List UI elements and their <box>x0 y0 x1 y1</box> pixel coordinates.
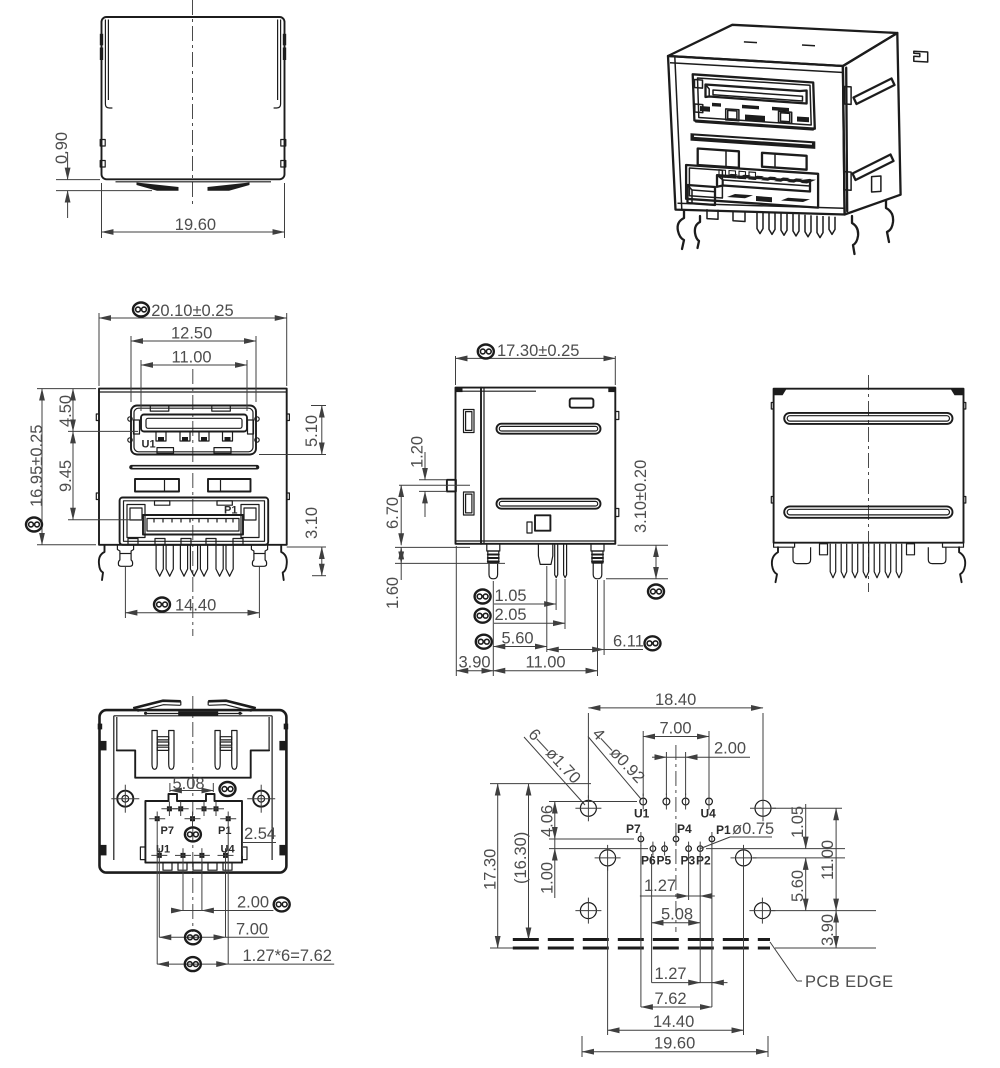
svg-text:0.90: 0.90 <box>53 132 71 164</box>
svg-text:5.60: 5.60 <box>789 870 807 902</box>
svg-text:12.50: 12.50 <box>171 325 212 343</box>
svg-text:PCB EDGE: PCB EDGE <box>805 973 893 991</box>
svg-text:P7: P7 <box>161 825 174 837</box>
svg-text:5.10: 5.10 <box>303 415 321 447</box>
svg-text:1.27: 1.27 <box>644 877 676 895</box>
svg-text:1.05: 1.05 <box>789 806 807 838</box>
svg-text:3.90: 3.90 <box>459 654 491 672</box>
svg-text:3.10: 3.10 <box>303 507 321 539</box>
svg-text:P7: P7 <box>626 822 641 836</box>
svg-text:6.11: 6.11 <box>613 633 644 651</box>
svg-text:ø0.75: ø0.75 <box>732 820 774 838</box>
svg-text:11.00: 11.00 <box>819 840 837 880</box>
svg-text:P3: P3 <box>681 854 696 868</box>
svg-text:19.60: 19.60 <box>175 216 216 234</box>
svg-text:P6: P6 <box>641 854 656 868</box>
svg-text:U1: U1 <box>634 807 650 821</box>
svg-text:2.54: 2.54 <box>244 825 276 843</box>
svg-text:17.30±0.25: 17.30±0.25 <box>497 342 579 360</box>
svg-text:P1: P1 <box>218 825 231 837</box>
svg-text:1.27*6=7.62: 1.27*6=7.62 <box>243 947 332 965</box>
svg-text:(16.30): (16.30) <box>512 832 530 884</box>
svg-text:U1: U1 <box>156 844 170 856</box>
svg-text:20.10±0.25: 20.10±0.25 <box>151 302 233 320</box>
svg-text:7.62: 7.62 <box>655 990 687 1008</box>
svg-text:U1: U1 <box>142 439 156 451</box>
svg-text:16.95±0.25: 16.95±0.25 <box>28 425 46 507</box>
svg-text:U4: U4 <box>701 807 717 821</box>
svg-text:11.00: 11.00 <box>526 654 566 672</box>
svg-text:2.00: 2.00 <box>237 894 269 912</box>
svg-text:1.20: 1.20 <box>409 436 427 468</box>
svg-text:5.60: 5.60 <box>502 630 534 648</box>
svg-text:11.00: 11.00 <box>172 349 212 367</box>
svg-text:14.40: 14.40 <box>175 597 216 615</box>
svg-text:2.00: 2.00 <box>714 740 746 758</box>
svg-text:3.90: 3.90 <box>819 914 837 946</box>
svg-text:4.50: 4.50 <box>57 395 75 427</box>
svg-text:1.27: 1.27 <box>655 965 687 983</box>
svg-text:17.30: 17.30 <box>482 849 500 890</box>
svg-text:6.70: 6.70 <box>384 497 402 529</box>
svg-text:P2: P2 <box>696 854 711 868</box>
svg-text:2.05: 2.05 <box>495 606 527 624</box>
svg-text:1.05: 1.05 <box>495 587 527 605</box>
svg-text:5.08: 5.08 <box>661 906 693 924</box>
svg-text:18.40: 18.40 <box>655 691 696 709</box>
svg-text:P1: P1 <box>224 505 237 517</box>
svg-text:3.10±0.20: 3.10±0.20 <box>632 460 650 533</box>
svg-text:9.45: 9.45 <box>57 460 75 492</box>
svg-text:5.08: 5.08 <box>173 775 205 793</box>
svg-text:1.60: 1.60 <box>384 577 402 609</box>
svg-text:1.00: 1.00 <box>539 862 557 894</box>
svg-text:7.00: 7.00 <box>236 920 268 938</box>
svg-text:4.06: 4.06 <box>539 805 557 837</box>
svg-text:P1: P1 <box>716 823 731 837</box>
svg-text:19.60: 19.60 <box>654 1035 695 1053</box>
svg-text:7.00: 7.00 <box>660 720 692 738</box>
svg-text:P4: P4 <box>677 822 692 836</box>
svg-text:14.40: 14.40 <box>653 1013 694 1031</box>
svg-text:P5: P5 <box>657 854 672 868</box>
